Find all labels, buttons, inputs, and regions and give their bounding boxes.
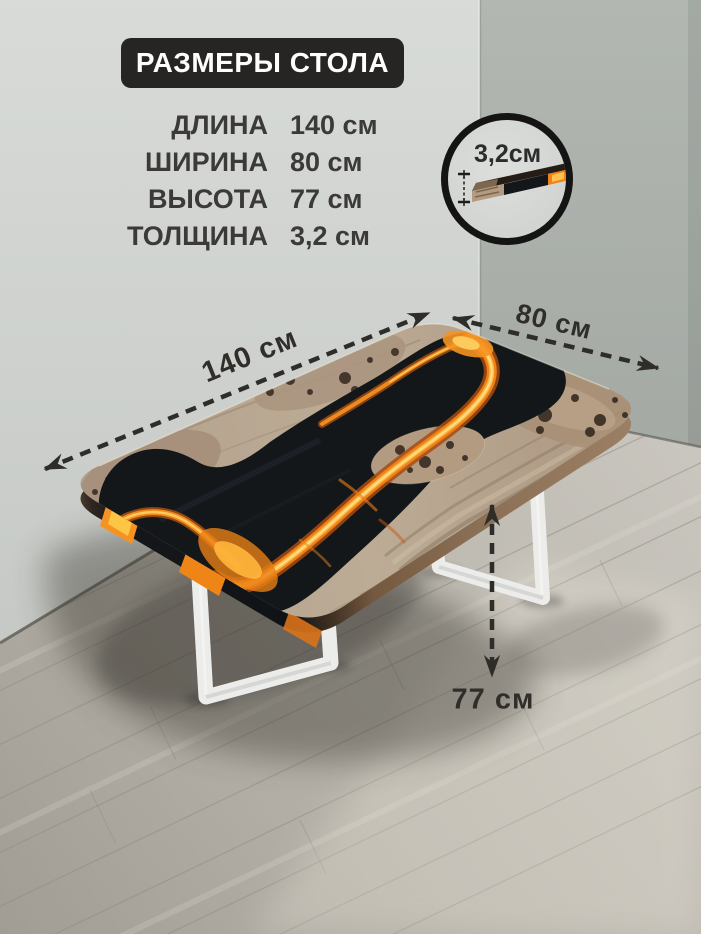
thickness-gauge-icon [458, 170, 470, 206]
spec-label: ДЛИНА [118, 110, 268, 141]
spec-value: 80 см [290, 147, 363, 178]
spec-row-height: ВЫСОТА 77 см [118, 181, 428, 218]
spec-label: ТОЛЩИНА [118, 221, 268, 252]
height-label: 77 см [452, 684, 535, 717]
title-banner: РАЗМЕРЫ СТОЛА [121, 38, 404, 88]
page-title: РАЗМЕРЫ СТОЛА [136, 47, 389, 79]
thickness-value: 3,2см [474, 140, 541, 169]
spec-label: ВЫСОТА [118, 184, 268, 215]
specs-list: ДЛИНА 140 см ШИРИНА 80 см ВЫСОТА 77 см Т… [118, 107, 428, 255]
tabletop-edge-closeup [448, 120, 566, 238]
thickness-inset: 3,2см [441, 113, 573, 245]
spec-label: ШИРИНА [118, 147, 268, 178]
spec-row-length: ДЛИНА 140 см [118, 107, 428, 144]
spec-value: 77 см [290, 184, 363, 215]
spec-value: 140 см [290, 110, 378, 141]
table-dimensions-product-image: РАЗМЕРЫ СТОЛА ДЛИНА 140 см ШИРИНА 80 см … [0, 0, 701, 934]
spec-row-thickness: ТОЛЩИНА 3,2 см [118, 218, 428, 255]
spec-value: 3,2 см [290, 221, 370, 252]
spec-row-width: ШИРИНА 80 см [118, 144, 428, 181]
